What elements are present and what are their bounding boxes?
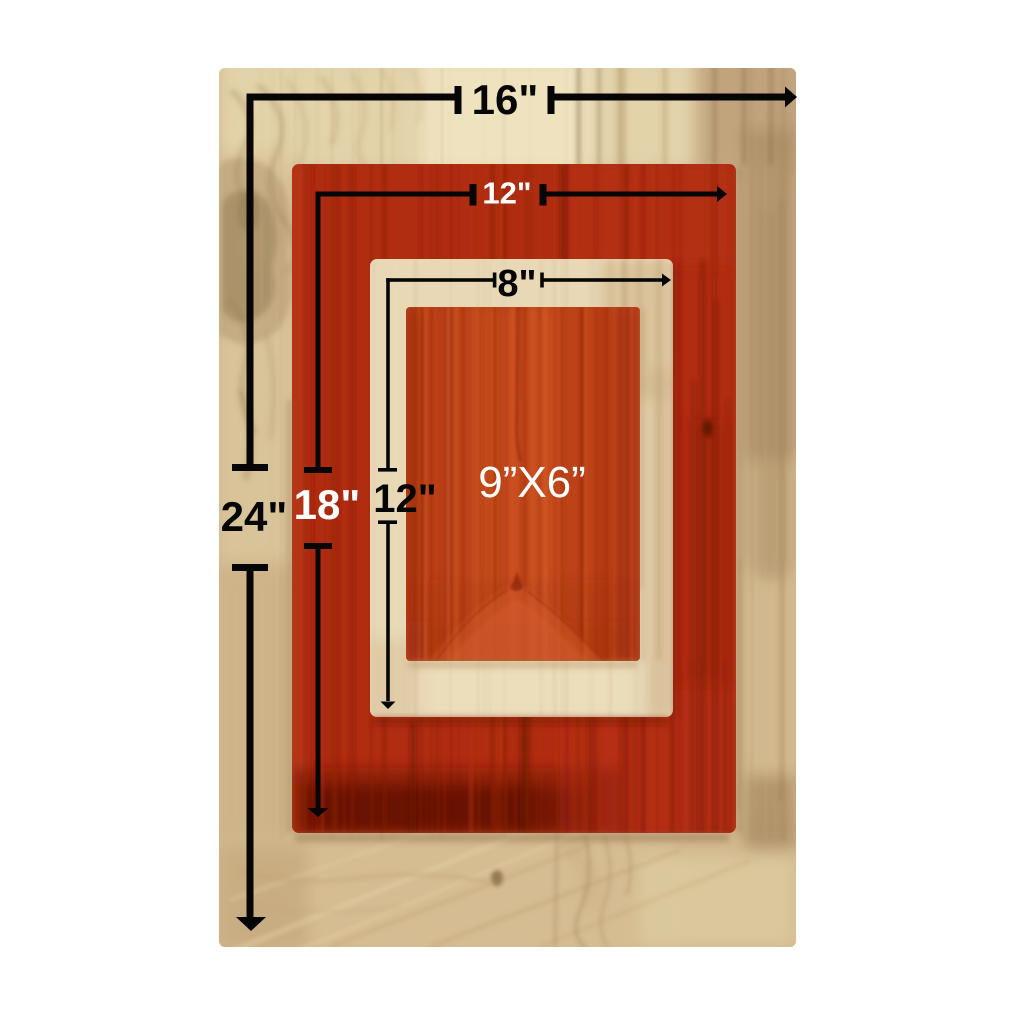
svg-text:8": 8": [497, 263, 536, 305]
svg-text:18": 18": [294, 481, 361, 528]
svg-text:24": 24": [221, 493, 288, 540]
svg-text:12": 12": [373, 477, 436, 521]
svg-text:9”X6”: 9”X6”: [478, 458, 586, 507]
svg-text:12": 12": [482, 176, 531, 211]
svg-text:16": 16": [472, 76, 539, 123]
